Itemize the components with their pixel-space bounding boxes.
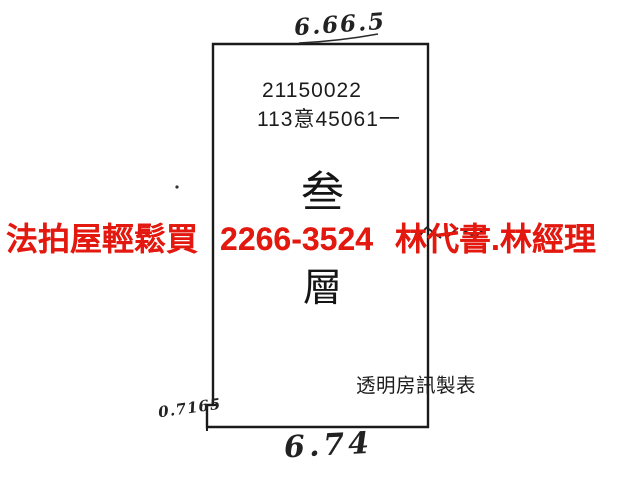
- ad-overlay-banner: 法拍屋輕鬆買 2266-3524 林代書.林經理: [6, 214, 596, 260]
- parcel-number-line2: 113意45061一: [257, 103, 401, 133]
- maker-label: 透明房訊製表: [356, 369, 476, 398]
- stray-dot-mark: [175, 185, 178, 188]
- dimension-bottom: 6.74: [283, 426, 374, 466]
- parcel-number-line1: 21150022: [262, 79, 362, 103]
- ad-contact-names: 林代書.林經理: [395, 214, 596, 260]
- floor-label-bottom-char: 層: [303, 257, 342, 313]
- scanned-floorplan-page: { "page": { "background_color": "#ffffff…: [0, 0, 640, 480]
- floor-label-top-char: 叁: [301, 158, 344, 220]
- ad-brand-text: 法拍屋輕鬆買: [6, 214, 198, 260]
- ad-phone-number: 2266-3524: [220, 221, 373, 258]
